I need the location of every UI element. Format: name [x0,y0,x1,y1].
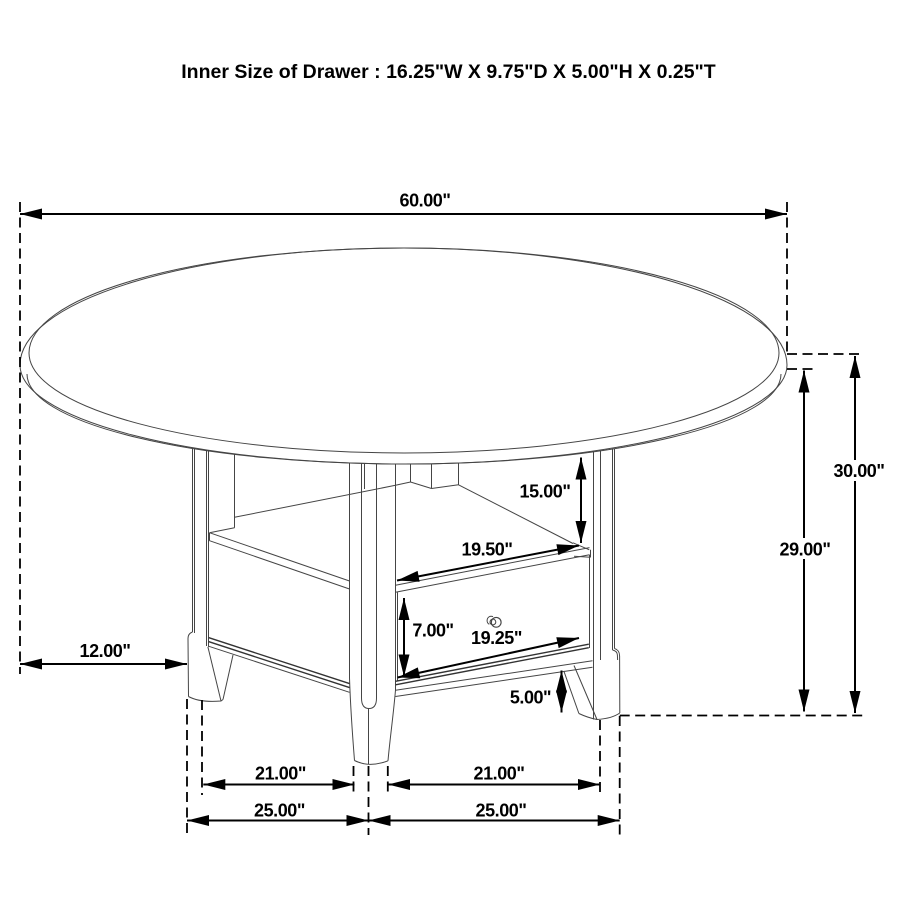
svg-text:5.00": 5.00" [510,688,551,708]
svg-text:15.00": 15.00" [520,482,571,502]
svg-text:25.00": 25.00" [254,801,305,821]
svg-text:19.25": 19.25" [471,628,522,648]
svg-text:29.00": 29.00" [780,540,831,560]
svg-text:21.00": 21.00" [474,764,525,784]
svg-text:30.00": 30.00" [834,461,885,481]
svg-text:21.00": 21.00" [255,764,306,784]
svg-text:7.00": 7.00" [412,621,453,641]
svg-text:Inner Size of Drawer : 16.25"W: Inner Size of Drawer : 16.25"W X 9.75"D … [181,61,716,83]
svg-text:25.00": 25.00" [476,801,527,821]
svg-text:60.00": 60.00" [400,191,451,211]
svg-text:19.50": 19.50" [462,540,513,560]
svg-text:12.00": 12.00" [80,641,131,661]
